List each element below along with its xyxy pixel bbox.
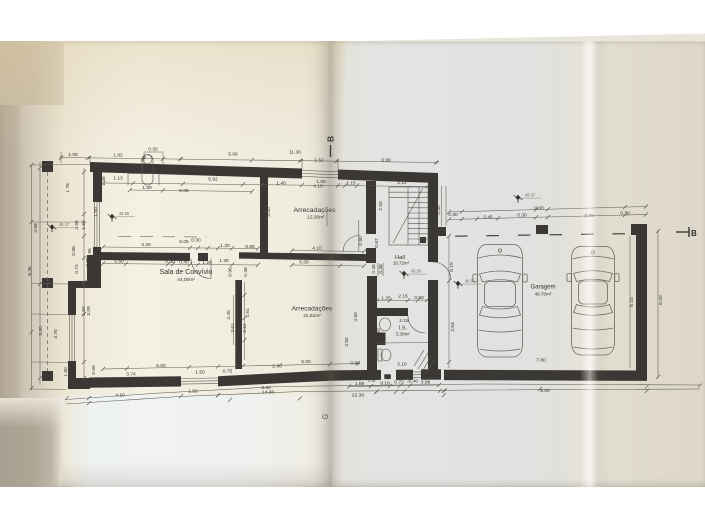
svg-text:8.36: 8.36	[27, 266, 33, 276]
svg-text:0.73: 0.73	[394, 380, 404, 386]
svg-text:0.96: 0.96	[87, 248, 93, 258]
svg-text:44,00m²: 44,00m²	[177, 277, 195, 283]
svg-text:3.76: 3.76	[53, 329, 59, 339]
svg-text:48.51: 48.51	[465, 279, 476, 284]
svg-text:1.78: 1.78	[65, 183, 71, 193]
svg-text:48.56: 48.56	[411, 269, 422, 274]
svg-text:0.75: 0.75	[223, 369, 233, 375]
svg-text:-0.40: -0.40	[407, 379, 418, 385]
svg-text:8.00: 8.00	[540, 388, 550, 394]
svg-text:0.38: 0.38	[243, 267, 249, 277]
svg-text:4.58: 4.58	[33, 223, 39, 233]
svg-text:11.36: 11.36	[289, 150, 301, 156]
svg-text:0.30: 0.30	[148, 147, 158, 153]
svg-text:3.88: 3.88	[421, 380, 431, 386]
svg-text:1.20: 1.20	[202, 260, 212, 266]
svg-text:1.05: 1.05	[68, 152, 78, 158]
svg-text:3.00: 3.00	[259, 207, 265, 217]
svg-text:1.82: 1.82	[113, 153, 123, 159]
svg-text:5,38m²: 5,38m²	[396, 332, 410, 337]
svg-text:1.60: 1.60	[81, 220, 87, 230]
svg-text:6.15: 6.15	[449, 262, 455, 272]
svg-text:4.45: 4.45	[226, 310, 232, 320]
svg-text:1.20: 1.20	[220, 243, 230, 249]
svg-text:9.18: 9.18	[380, 381, 390, 387]
svg-text:14.36: 14.36	[262, 390, 275, 396]
svg-text:1.50: 1.50	[188, 389, 198, 395]
svg-text:2.15: 2.15	[398, 294, 408, 300]
svg-text:5.00: 5.00	[299, 260, 309, 266]
svg-text:0.80: 0.80	[350, 361, 360, 367]
svg-text:0.65: 0.65	[91, 365, 97, 375]
svg-text:1.30: 1.30	[219, 258, 229, 264]
svg-text:0.90: 0.90	[245, 244, 255, 250]
svg-text:2.50: 2.50	[378, 201, 384, 211]
svg-text:1.88: 1.88	[355, 381, 365, 387]
svg-text:1.50: 1.50	[114, 259, 124, 265]
svg-text:2.16: 2.16	[397, 362, 407, 368]
svg-text:0.90: 0.90	[358, 236, 364, 246]
svg-text:4.10: 4.10	[115, 393, 125, 399]
svg-text:0.18: 0.18	[368, 379, 375, 383]
svg-text:2.15: 2.15	[399, 318, 409, 324]
svg-text:1.40: 1.40	[276, 181, 286, 187]
svg-text:48.47: 48.47	[525, 193, 536, 198]
svg-text:48,70m²: 48,70m²	[535, 292, 552, 297]
svg-text:5.92: 5.92	[208, 177, 218, 183]
svg-text:3.29: 3.29	[141, 242, 151, 248]
svg-text:5.00: 5.00	[301, 359, 311, 365]
svg-text:48.47: 48.47	[59, 222, 70, 227]
svg-text:2.10: 2.10	[370, 201, 376, 211]
svg-text:1.15: 1.15	[346, 181, 356, 187]
svg-text:Sala de Convívio: Sala de Convívio	[160, 269, 213, 276]
svg-text:0.30: 0.30	[191, 238, 201, 244]
svg-text:0.30: 0.30	[517, 213, 527, 219]
svg-text:1.50: 1.50	[93, 207, 99, 217]
svg-text:3.20: 3.20	[38, 326, 44, 336]
svg-text:3.61: 3.61	[230, 323, 236, 333]
svg-text:0.88: 0.88	[71, 246, 77, 256]
svg-text:6.05: 6.05	[179, 188, 189, 194]
svg-text:1.13: 1.13	[113, 176, 123, 182]
svg-text:6.00: 6.00	[156, 363, 166, 369]
svg-text:0.30: 0.30	[436, 205, 442, 215]
svg-text:Garagem: Garagem	[530, 285, 555, 291]
svg-text:3.53: 3.53	[450, 322, 456, 332]
svg-text:3.61: 3.61	[242, 323, 248, 333]
svg-text:6.05: 6.05	[179, 239, 189, 245]
svg-text:7.80: 7.80	[536, 358, 546, 364]
svg-text:5.66: 5.66	[228, 152, 238, 158]
svg-text:2.50: 2.50	[376, 328, 382, 338]
svg-text:9.00: 9.00	[534, 206, 544, 212]
svg-text:3.45: 3.45	[483, 215, 493, 221]
svg-text:3.99: 3.99	[381, 158, 391, 164]
svg-text:6.00: 6.00	[658, 295, 664, 305]
svg-text:22.36: 22.36	[352, 393, 365, 399]
svg-text:0.60: 0.60	[414, 295, 424, 301]
svg-text:0.38: 0.38	[371, 264, 377, 274]
svg-text:48.56: 48.56	[119, 211, 130, 216]
svg-text:0.30: 0.30	[448, 212, 458, 218]
svg-text:0.67: 0.67	[374, 238, 380, 248]
svg-text:3.92: 3.92	[344, 337, 350, 347]
svg-text:4.56: 4.56	[74, 220, 80, 230]
svg-text:6.15: 6.15	[629, 297, 635, 307]
svg-text:1.80: 1.80	[63, 367, 69, 377]
svg-text:2.14: 2.14	[397, 180, 407, 186]
svg-text:3.09: 3.09	[86, 306, 92, 316]
svg-text:0.40: 0.40	[179, 260, 189, 266]
svg-text:10,72m²: 10,72m²	[393, 261, 410, 266]
svg-text:1.00: 1.00	[142, 185, 152, 191]
svg-text:0.38: 0.38	[378, 264, 384, 274]
svg-text:0.30: 0.30	[620, 211, 630, 217]
svg-text:4.50: 4.50	[353, 312, 359, 322]
svg-text:B: B	[691, 229, 697, 238]
svg-text:3.74: 3.74	[126, 372, 136, 378]
svg-text:1.50: 1.50	[195, 370, 205, 376]
svg-text:0.96: 0.96	[228, 267, 234, 277]
svg-text:0.74: 0.74	[74, 264, 80, 274]
svg-text:3.00: 3.00	[266, 207, 272, 217]
